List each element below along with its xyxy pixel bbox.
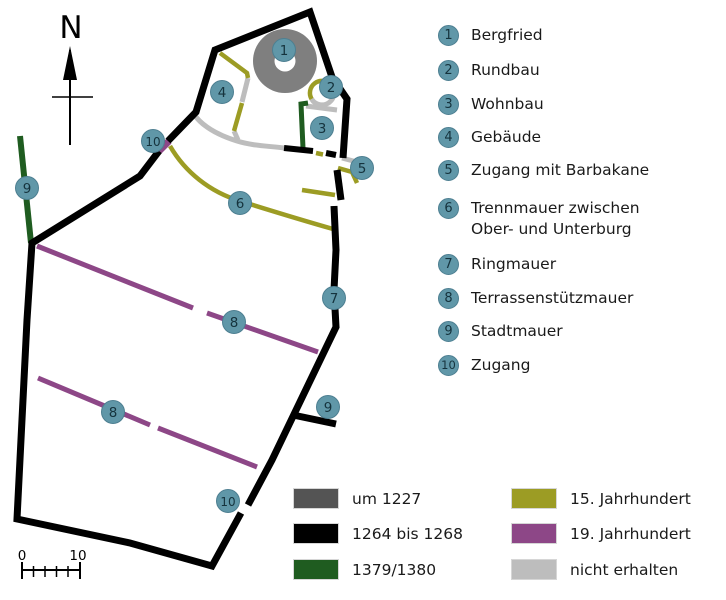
legend-item-label: Stadtmauer [471, 321, 563, 342]
north-label: N [59, 10, 82, 46]
marker-number: 1 [280, 43, 289, 59]
north-arrow: N [52, 10, 93, 145]
legend-item-3: 3Wohnbau [438, 94, 544, 115]
marker-number: 8 [230, 315, 239, 331]
scale-start-label: 0 [18, 548, 27, 564]
marker-number: 4 [218, 85, 227, 101]
ringmauer-southwest-segment [17, 151, 241, 566]
terrace-wall-2b [158, 428, 257, 467]
legend-item-label: Terrassenstützmauer [471, 288, 633, 309]
wohnbau-south-wall-end [326, 153, 336, 155]
legend-item-label: Ringmauer [471, 254, 556, 275]
wall-15jh-segment [220, 53, 248, 78]
scale-bar: 0 10 [18, 548, 87, 579]
color-swatch [293, 559, 339, 580]
legend-marker-badge: 3 [438, 94, 459, 115]
legend-marker-badge: 2 [438, 60, 459, 81]
wohnbau-west-wall [301, 103, 308, 148]
legend-item-10: 10Zugang [438, 355, 530, 376]
terrace-wall-1a [37, 246, 193, 308]
legend-item-label: Trennmauer zwischenOber- und Unterburg [471, 198, 640, 240]
period-item-1264-1268: 1264 bis 1268 [293, 523, 463, 544]
north-arrow-head [63, 46, 77, 80]
legend-marker-badge: 10 [438, 355, 459, 376]
marker-number: 9 [324, 400, 333, 416]
map-marker-9: 9 [317, 396, 340, 419]
wohnbau-south-wall [284, 148, 313, 151]
legend-marker-badge: 9 [438, 321, 459, 342]
legend-item-label: Wohnbau [471, 94, 544, 115]
ringmauer-southeast-segment [248, 206, 336, 505]
legend-item-label: Rundbau [471, 60, 540, 81]
legend-item-label: Bergfried [471, 25, 543, 46]
marker-number: 7 [330, 291, 339, 307]
map-marker-10: 10 [217, 490, 240, 513]
map-marker-6: 6 [229, 192, 252, 215]
castle-plan-figure: N 0 10 123456788991010 1Bergfried2Rundba… [0, 0, 726, 600]
marker-number: 2 [327, 80, 336, 96]
color-swatch [293, 488, 339, 509]
legend-item-2: 2Rundbau [438, 60, 540, 81]
period-item-1379-1380: 1379/1380 [293, 559, 436, 580]
period-label: 19. Jahrhundert [570, 525, 691, 543]
period-item-19-jahrhundert: 19. Jahrhundert [511, 523, 691, 544]
map-marker-7: 7 [323, 287, 346, 310]
wall-15jh-segment [302, 190, 335, 195]
ringmauer-east-gap-segment [337, 170, 341, 200]
marker-number: 6 [236, 196, 245, 212]
map-marker-5: 5 [351, 157, 374, 180]
legend-marker-badge: 4 [438, 127, 459, 148]
color-swatch [511, 488, 557, 509]
scale-end-label: 10 [69, 548, 86, 564]
color-swatch [511, 559, 557, 580]
legend-item-8: 8Terrassenstützmauer [438, 288, 633, 309]
trennmauer-path [170, 146, 333, 229]
map-marker-10: 10 [142, 130, 165, 153]
wall-15jh-segment [316, 153, 323, 155]
color-swatch [293, 523, 339, 544]
wall-lost-segment [196, 117, 284, 148]
legend-item-7: 7Ringmauer [438, 254, 556, 275]
legend-item-label: Zugang [471, 355, 530, 376]
map-marker-3: 3 [311, 117, 334, 140]
map-marker-4: 4 [211, 81, 234, 104]
legend-marker-badge: 1 [438, 25, 459, 46]
marker-number: 8 [109, 405, 118, 421]
wall-15jh-segment [234, 103, 242, 131]
period-label: 15. Jahrhundert [570, 490, 691, 508]
marker-number: 10 [220, 495, 235, 509]
map-marker-2: 2 [320, 76, 343, 99]
wall-lost-segment [242, 78, 248, 102]
legend-item-6: 6Trennmauer zwischenOber- und Unterburg [438, 198, 640, 240]
legend-item-label: Gebäude [471, 127, 541, 148]
legend-item-9: 9Stadtmauer [438, 321, 563, 342]
map-marker-8: 8 [102, 401, 125, 424]
legend-marker-badge: 7 [438, 254, 459, 275]
period-label: nicht erhalten [570, 561, 678, 579]
legend-item-label: Zugang mit Barbakane [471, 160, 649, 181]
legend-marker-badge: 6 [438, 198, 459, 219]
walls-1264-group [17, 12, 347, 566]
period-label: um 1227 [352, 490, 421, 508]
period-label: 1379/1380 [352, 561, 436, 579]
map-marker-9: 9 [16, 177, 39, 200]
terrace-wall-2a [38, 378, 150, 425]
period-item-15-jahrhundert: 15. Jahrhundert [511, 488, 691, 509]
legend-marker-badge: 8 [438, 288, 459, 309]
legend-marker-badge: 5 [438, 160, 459, 181]
period-item-nicht-erhalten: nicht erhalten [511, 559, 678, 580]
legend-item-1: 1Bergfried [438, 25, 543, 46]
marker-number: 10 [145, 135, 160, 149]
legend-item-5: 5Zugang mit Barbakane [438, 160, 649, 181]
color-swatch [511, 523, 557, 544]
scale-bar-tick-minor [34, 566, 69, 577]
map-marker-8: 8 [223, 311, 246, 334]
map-marker-1: 1 [273, 39, 296, 62]
marker-number: 3 [318, 121, 327, 137]
walls-19th-century-group [37, 141, 318, 467]
legend-item-4: 4Gebäude [438, 127, 541, 148]
period-label: 1264 bis 1268 [352, 525, 463, 543]
period-item-um-1227: um 1227 [293, 488, 421, 509]
marker-number: 5 [358, 161, 367, 177]
marker-number: 9 [23, 181, 32, 197]
